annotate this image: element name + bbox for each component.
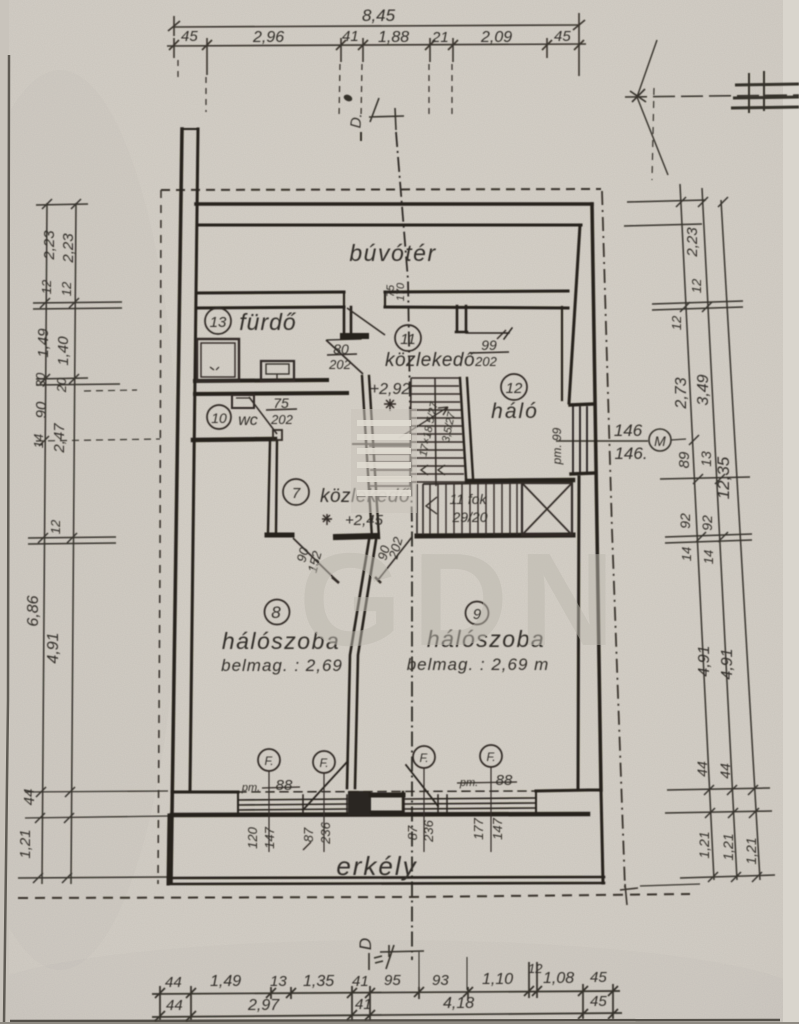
svg-text:pm.: pm.	[459, 777, 478, 789]
svg-text:4,18: 4,18	[443, 995, 474, 1012]
svg-text:4,91: 4,91	[719, 648, 736, 679]
svg-text:7: 7	[292, 485, 301, 502]
svg-text:202: 202	[270, 412, 293, 427]
svg-text:44: 44	[21, 789, 38, 806]
svg-text:12: 12	[59, 281, 74, 296]
svg-text:1,21: 1,21	[17, 829, 34, 858]
svg-text:1,40: 1,40	[55, 336, 72, 366]
svg-text:44: 44	[166, 997, 183, 1014]
svg-text:44: 44	[694, 761, 710, 777]
svg-text:2,09: 2,09	[480, 29, 512, 46]
svg-text:háló: háló	[491, 400, 539, 423]
svg-text:F.: F.	[319, 756, 328, 770]
svg-text:236: 236	[421, 819, 436, 842]
svg-text:pm. 99: pm. 99	[550, 427, 564, 465]
svg-text:11: 11	[400, 331, 416, 348]
svg-text:F.: F.	[419, 751, 428, 765]
svg-text:45: 45	[554, 28, 571, 45]
svg-text:146.: 146.	[614, 444, 647, 463]
svg-text:6,86: 6,86	[25, 595, 42, 626]
svg-text:202: 202	[328, 357, 351, 372]
svg-text:41: 41	[342, 28, 359, 45]
svg-text:1,08: 1,08	[543, 970, 574, 987]
svg-text:GDN: GDN	[299, 526, 625, 673]
svg-text:1,21: 1,21	[696, 831, 712, 858]
svg-text:177: 177	[471, 817, 486, 839]
svg-text:45: 45	[181, 28, 198, 45]
svg-text:2,73: 2,73	[673, 377, 690, 409]
svg-text:8: 8	[271, 603, 281, 622]
svg-text:29/20: 29/20	[451, 509, 487, 525]
svg-text:erkély: erkély	[336, 851, 417, 881]
svg-text:12,35: 12,35	[714, 456, 733, 499]
svg-text:20: 20	[54, 377, 69, 393]
svg-text:12: 12	[506, 380, 523, 397]
svg-text:2,96: 2,96	[252, 29, 284, 46]
svg-text:147: 147	[490, 817, 505, 839]
svg-text:1,88: 1,88	[378, 29, 409, 46]
svg-text:1,49: 1,49	[210, 973, 241, 990]
svg-text:D: D	[356, 938, 375, 950]
svg-text:41: 41	[352, 973, 369, 990]
svg-text:1,21: 1,21	[743, 837, 759, 864]
svg-text:D.: D.	[347, 112, 365, 128]
svg-text:+2,92: +2,92	[370, 381, 411, 398]
svg-text:3,49: 3,49	[695, 374, 712, 405]
svg-text:11 fok: 11 fok	[449, 491, 487, 507]
svg-text:87: 87	[405, 825, 420, 840]
svg-text:146: 146	[614, 421, 643, 440]
svg-text:75: 75	[273, 395, 289, 411]
svg-text:147: 147	[262, 826, 277, 848]
svg-text:92: 92	[677, 513, 693, 529]
svg-text:8,45: 8,45	[362, 6, 396, 25]
svg-text:búvótér: búvótér	[349, 240, 436, 266]
svg-text:44: 44	[717, 763, 733, 779]
svg-text:21: 21	[431, 29, 449, 46]
svg-text:fürdő: fürdő	[239, 309, 297, 335]
svg-text:99: 99	[481, 337, 497, 353]
svg-text:4,91: 4,91	[45, 632, 62, 663]
svg-text:1,10: 1,10	[482, 971, 513, 988]
svg-text:45: 45	[590, 969, 607, 986]
svg-text:F.: F.	[264, 754, 273, 768]
svg-text:30: 30	[33, 372, 48, 387]
svg-text:89: 89	[676, 451, 693, 468]
svg-text:170: 170	[395, 282, 407, 301]
svg-text:13: 13	[270, 973, 287, 990]
svg-text:12: 12	[669, 315, 684, 330]
svg-text:44: 44	[165, 974, 182, 991]
svg-text:92: 92	[699, 515, 715, 531]
svg-text:13: 13	[698, 451, 714, 467]
svg-text:45: 45	[590, 993, 607, 1010]
svg-text:12: 12	[689, 278, 704, 293]
svg-text:2,23: 2,23	[41, 230, 58, 261]
svg-text:14: 14	[679, 547, 694, 561]
svg-text:10: 10	[211, 410, 227, 426]
svg-text:93: 93	[432, 972, 449, 989]
svg-text:80: 80	[333, 341, 349, 357]
svg-text:90: 90	[33, 401, 50, 418]
svg-text:202: 202	[474, 354, 497, 369]
svg-text:87: 87	[301, 827, 316, 842]
svg-text:2,97: 2,97	[247, 997, 280, 1014]
svg-text:14: 14	[31, 434, 46, 448]
svg-text:88: 88	[496, 772, 513, 789]
svg-text:4,91: 4,91	[696, 645, 713, 676]
svg-text:1,49: 1,49	[35, 328, 52, 358]
svg-text:95: 95	[384, 972, 401, 989]
svg-text:1,21: 1,21	[720, 833, 736, 860]
svg-text:2,23: 2,23	[60, 233, 77, 264]
svg-text:F.: F.	[486, 750, 495, 764]
svg-text:1,35: 1,35	[303, 973, 334, 990]
svg-text:88: 88	[276, 777, 293, 794]
svg-text:236: 236	[318, 821, 333, 844]
svg-text:közlekedő: közlekedő	[385, 350, 475, 371]
svg-text:12: 12	[48, 519, 63, 534]
svg-text:wc: wc	[238, 412, 258, 429]
svg-text:41: 41	[355, 996, 372, 1013]
svg-text:120: 120	[245, 826, 260, 848]
svg-text:12: 12	[528, 961, 543, 976]
svg-text:12: 12	[39, 279, 54, 294]
svg-text:2,47: 2,47	[51, 423, 68, 454]
svg-text:13: 13	[210, 314, 227, 331]
svg-text:pm.: pm.	[241, 782, 260, 794]
svg-text:2,23: 2,23	[684, 227, 701, 258]
svg-text:M: M	[654, 433, 666, 449]
svg-text:14: 14	[701, 550, 716, 564]
